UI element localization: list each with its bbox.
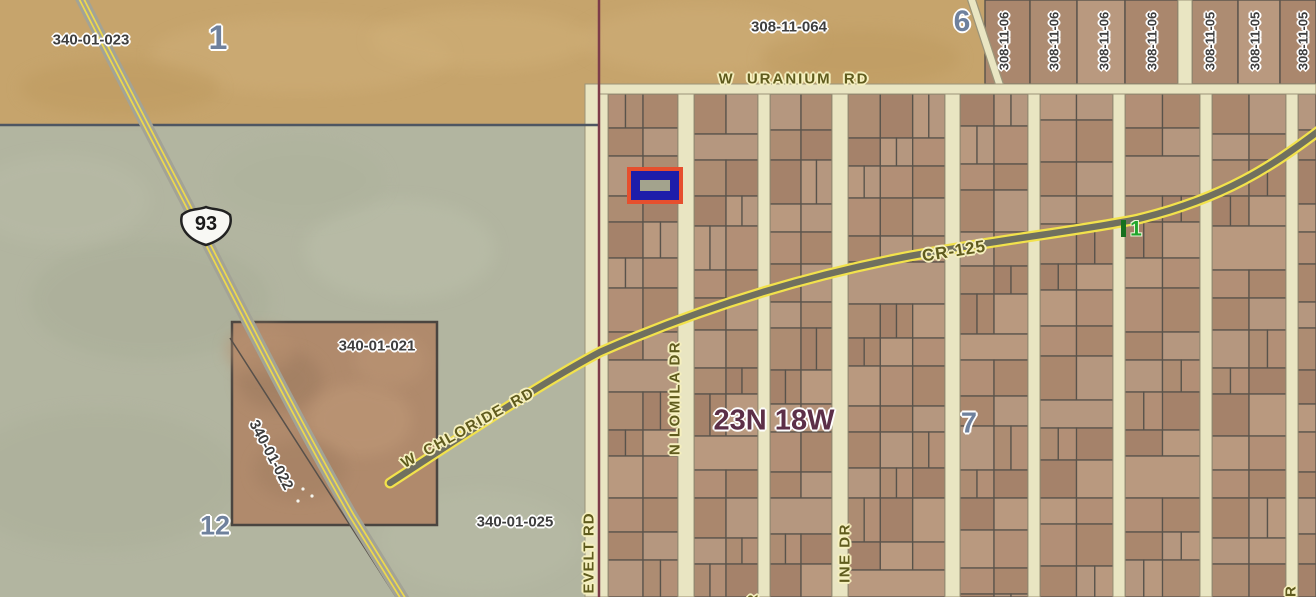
parcel-lot[interactable] <box>1212 436 1249 470</box>
parcel-lot[interactable] <box>726 160 758 196</box>
parcel-lot[interactable] <box>1125 360 1163 392</box>
parcel-lot[interactable] <box>977 294 994 334</box>
parcel-lot[interactable] <box>1249 538 1286 564</box>
parcel-lot[interactable] <box>801 302 832 328</box>
parcel-lot[interactable] <box>1125 498 1163 532</box>
parcel-lot[interactable] <box>960 568 994 594</box>
parcel-lot[interactable] <box>643 128 678 156</box>
parcel-lot[interactable] <box>1125 128 1163 156</box>
parcel-lot[interactable] <box>1077 356 1114 400</box>
parcel-lot[interactable] <box>848 468 880 498</box>
parcel-lot[interactable] <box>817 160 833 204</box>
parcel-lot[interactable] <box>1212 394 1249 436</box>
parcel-lot[interactable] <box>913 304 945 338</box>
parcel-lot[interactable] <box>913 406 945 432</box>
strip-parcel[interactable] <box>1077 0 1125 84</box>
parcel-lot[interactable] <box>801 204 832 232</box>
parcel-lot[interactable] <box>1077 460 1114 498</box>
parcel-lot[interactable] <box>1298 404 1316 432</box>
parcel-lot[interactable] <box>977 126 994 164</box>
parcel-lot[interactable] <box>1163 360 1182 392</box>
parcel-lot[interactable] <box>1212 470 1249 498</box>
parcel-lot[interactable] <box>960 396 994 426</box>
parcel-lot[interactable] <box>710 226 726 270</box>
local-road <box>1286 84 1298 597</box>
parcel-lot[interactable] <box>848 198 880 236</box>
parcel-lot[interactable] <box>994 360 1028 396</box>
parcel-lot[interactable] <box>694 94 726 134</box>
parcel-lot[interactable] <box>726 538 742 564</box>
parcel-lot[interactable] <box>913 498 945 542</box>
parcel-lot[interactable] <box>801 432 832 472</box>
parcel-lot[interactable] <box>643 222 661 258</box>
parcel-lot[interactable] <box>1058 264 1076 290</box>
parcel-lot[interactable] <box>1163 128 1201 156</box>
map-canvas <box>0 0 1316 597</box>
parcel-lot[interactable] <box>1298 472 1316 498</box>
parcel-lot[interactable] <box>913 366 945 406</box>
parcel-lot[interactable] <box>1125 94 1163 128</box>
parcel-lot[interactable] <box>801 94 832 130</box>
parcel-lot[interactable] <box>1163 288 1201 332</box>
parcel-lot[interactable] <box>1212 330 1249 368</box>
parcel-lot[interactable] <box>960 94 994 126</box>
parcel-lot[interactable] <box>1212 134 1249 160</box>
parcel-lot[interactable] <box>643 94 678 128</box>
parcel-lot[interactable] <box>726 226 758 270</box>
parcel-lot[interactable] <box>1249 564 1286 597</box>
parcel-lot[interactable] <box>913 166 945 198</box>
parcel-lot[interactable] <box>1249 498 1268 538</box>
parcel-lot[interactable] <box>643 456 678 498</box>
parcel-lot[interactable] <box>1231 196 1250 226</box>
parcel-lot[interactable] <box>1249 196 1286 226</box>
parcel-lot[interactable] <box>770 564 801 597</box>
parcel-lot[interactable] <box>1212 298 1249 330</box>
parcel-lot[interactable] <box>1040 196 1077 224</box>
parcel-lot[interactable] <box>994 266 1011 294</box>
parcel-lot[interactable] <box>786 534 802 564</box>
parcel-lot[interactable] <box>1040 264 1058 290</box>
parcel-lot[interactable] <box>848 366 880 406</box>
parcel-lot[interactable] <box>994 190 1028 232</box>
parcel-lot[interactable] <box>801 370 832 404</box>
parcel-lot[interactable] <box>994 396 1028 426</box>
parcel-lot[interactable] <box>694 160 726 196</box>
parcel-lot[interactable] <box>608 498 643 532</box>
parcel-lot[interactable] <box>1077 326 1114 356</box>
parcel-lot[interactable] <box>694 226 710 270</box>
parcel-lot[interactable] <box>1231 368 1250 394</box>
parcel-lot[interactable] <box>1249 436 1286 470</box>
parcel-lot[interactable] <box>1011 94 1028 126</box>
parcel-lot[interactable] <box>1249 270 1286 298</box>
parcel-lot[interactable] <box>742 368 758 394</box>
parcel-lot[interactable] <box>1249 298 1286 330</box>
strip-parcel[interactable] <box>1280 0 1316 84</box>
parcel-lot[interactable] <box>694 196 726 226</box>
parcel-lot[interactable] <box>1212 196 1231 226</box>
parcel-lot[interactable] <box>726 394 758 436</box>
parcel-lot[interactable] <box>1144 560 1163 597</box>
parcel-lot[interactable] <box>817 328 833 370</box>
parcel-lot[interactable] <box>960 530 994 568</box>
parcel-lot[interactable] <box>960 190 994 232</box>
parcel-lot[interactable] <box>1212 564 1249 597</box>
parcel-lot[interactable] <box>1125 332 1163 360</box>
parcel-lot[interactable] <box>694 330 726 368</box>
parcel-lot[interactable] <box>1040 400 1113 428</box>
parcel-lot[interactable] <box>1040 356 1077 400</box>
parcel-lot[interactable] <box>880 138 896 166</box>
parcel-lot[interactable] <box>1298 232 1316 264</box>
parcel-lot[interactable] <box>994 164 1028 190</box>
parcel-lot[interactable] <box>1040 460 1077 498</box>
parcel-lot[interactable] <box>770 498 832 534</box>
parcel-lot[interactable] <box>770 160 801 204</box>
parcel-lot[interactable] <box>1212 368 1231 394</box>
parcel-lot[interactable] <box>770 130 801 160</box>
parcel-lot[interactable] <box>1125 258 1163 288</box>
parcel-lot[interactable] <box>880 406 912 432</box>
parcel-lot[interactable] <box>742 196 758 226</box>
parcel-lot[interactable] <box>710 564 726 597</box>
parcel-lot[interactable] <box>643 498 678 532</box>
parcel-lot[interactable] <box>1298 204 1316 232</box>
parcel-lot[interactable] <box>1298 160 1316 204</box>
parcel-lot[interactable] <box>608 560 643 597</box>
parcel-lot[interactable] <box>643 258 678 288</box>
parcel-lot[interactable] <box>726 470 758 498</box>
parcel-lot[interactable] <box>897 304 913 338</box>
parcel-lot[interactable] <box>1077 290 1114 326</box>
parcel-lot[interactable] <box>1125 392 1144 430</box>
parcel-lot[interactable] <box>1125 156 1200 196</box>
parcel-lot[interactable] <box>848 338 864 366</box>
parcel-lot[interactable] <box>770 328 801 370</box>
parcel-lot[interactable] <box>848 432 880 468</box>
parcel-lot[interactable] <box>913 542 945 570</box>
parcel-lot[interactable] <box>1077 94 1114 120</box>
parcel-lot[interactable] <box>864 338 880 366</box>
parcel-lot[interactable] <box>1040 326 1077 356</box>
parcel-lot[interactable] <box>1163 498 1201 532</box>
parcel-lot[interactable] <box>1125 456 1200 498</box>
parcel-lot[interactable] <box>960 294 977 334</box>
parcel-lot[interactable] <box>994 294 1028 334</box>
parcel-lot[interactable] <box>694 498 726 538</box>
highlighted-parcel-center <box>640 180 670 191</box>
local-road <box>1200 84 1212 597</box>
parcel-lot[interactable] <box>608 456 643 498</box>
parcel-lot[interactable] <box>726 498 758 538</box>
parcel-lot[interactable] <box>786 370 802 404</box>
local-road <box>585 84 608 597</box>
parcel-lot[interactable] <box>1040 162 1077 196</box>
parcel-lot[interactable] <box>801 472 832 498</box>
parcel-lot[interactable] <box>960 360 994 396</box>
parcel-lot[interactable] <box>1011 426 1028 470</box>
parcel-lot[interactable] <box>1163 430 1201 456</box>
strip-parcel[interactable] <box>1125 0 1178 84</box>
parcel-lot[interactable] <box>1163 560 1201 597</box>
parcel-lot[interactable] <box>801 404 832 432</box>
parcel-lot[interactable] <box>848 304 880 338</box>
parcel-lot[interactable] <box>1040 94 1077 120</box>
parcel-lot[interactable] <box>643 392 661 430</box>
parcel-lot[interactable] <box>960 498 994 530</box>
parcel-lot[interactable] <box>960 126 977 164</box>
parcel-lot[interactable] <box>1077 524 1114 566</box>
parcel-lot[interactable] <box>801 534 832 564</box>
parcel-lot[interactable] <box>1077 428 1114 460</box>
strip-parcel[interactable] <box>1238 0 1280 84</box>
parcel-lot[interactable] <box>726 94 758 134</box>
parcel-lot[interactable] <box>1298 498 1316 534</box>
parcel-lot[interactable] <box>1298 328 1316 370</box>
parcel-lot[interactable] <box>608 288 643 332</box>
parcel-lot[interactable] <box>1212 270 1249 298</box>
parcel-lot[interactable] <box>1298 370 1316 404</box>
parcel-lot[interactable] <box>1163 258 1201 288</box>
parcel-lot[interactable] <box>801 328 817 370</box>
parcel-lot[interactable] <box>960 266 994 294</box>
parcel-lot[interactable] <box>960 426 994 470</box>
parcel-lot[interactable] <box>1212 538 1249 564</box>
parcel-lot[interactable] <box>1144 392 1163 430</box>
parcel-lot[interactable] <box>994 568 1028 594</box>
parcel-lot[interactable] <box>913 94 929 138</box>
parcel-lot[interactable] <box>848 94 880 138</box>
parcel-lot[interactable] <box>608 94 626 128</box>
parcel-lot[interactable] <box>880 166 912 198</box>
parcel-lot[interactable] <box>1249 470 1286 498</box>
parcel-lot[interactable] <box>694 538 726 564</box>
parcel-lot[interactable] <box>1125 222 1144 258</box>
local-road <box>1028 84 1040 597</box>
parcel-lot[interactable] <box>1040 566 1077 597</box>
parcel-lot[interactable] <box>1249 94 1286 134</box>
parcel-lot[interactable] <box>643 430 678 456</box>
parcel-lot[interactable] <box>880 468 896 498</box>
parcel-lot[interactable] <box>1212 498 1249 538</box>
parcel-lot[interactable] <box>1298 534 1316 564</box>
parcel-lot[interactable] <box>880 338 912 366</box>
parcel-lot[interactable] <box>1298 432 1316 472</box>
parcel-lot[interactable] <box>880 304 896 338</box>
parcel-lot[interactable] <box>848 498 864 542</box>
local-road <box>758 84 770 597</box>
parcel-lot[interactable] <box>726 196 742 226</box>
parcel-lot[interactable] <box>608 128 643 156</box>
strip-parcels <box>971 0 1316 86</box>
parcel-lot[interactable] <box>608 222 643 258</box>
parcel-lot[interactable] <box>929 94 945 138</box>
parcel-lot[interactable] <box>897 138 913 166</box>
parcel-lot[interactable] <box>1212 226 1286 270</box>
parcel-lot[interactable] <box>770 404 801 432</box>
parcel-lot[interactable] <box>1077 566 1095 597</box>
local-road <box>1113 84 1125 597</box>
parcel-lot[interactable] <box>1125 430 1163 456</box>
parcel-lot[interactable] <box>913 468 945 498</box>
parcel-lot[interactable] <box>880 498 912 542</box>
parcel-lot[interactable] <box>770 534 786 564</box>
parcel-lot[interactable] <box>1040 120 1077 162</box>
parcel-lot[interactable] <box>960 470 977 498</box>
parcel-lot[interactable] <box>848 542 880 570</box>
parcel-lot[interactable] <box>801 160 817 204</box>
parcel-lot[interactable] <box>710 394 726 436</box>
parcel-lot[interactable] <box>694 470 726 498</box>
parcel-lot[interactable] <box>994 94 1011 126</box>
parcel-lot[interactable] <box>848 138 880 166</box>
local-road-w-uranium <box>599 84 1316 94</box>
gis-parcel-map[interactable]: 340-01-023 1 308-11-064 6 W URANIUM RD 3… <box>0 0 1316 597</box>
parcel-lot[interactable] <box>643 532 678 560</box>
parcel-lot[interactable] <box>880 432 912 468</box>
parcel-lot[interactable] <box>1077 264 1114 290</box>
parcel-lot[interactable] <box>913 138 945 166</box>
parcel-lot[interactable] <box>742 538 758 564</box>
parcel-lot[interactable] <box>626 258 644 288</box>
parcel-lot[interactable] <box>880 94 912 138</box>
parcel-lot[interactable] <box>994 470 1028 498</box>
parcel-lot[interactable] <box>880 198 912 236</box>
parcel-lot[interactable] <box>801 130 832 160</box>
parcel-lot[interactable] <box>1298 94 1316 130</box>
parcel-lot[interactable] <box>1249 394 1286 436</box>
parcel-lot[interactable] <box>608 532 643 560</box>
parcel-lot[interactable] <box>626 430 644 456</box>
parcel-lot[interactable] <box>1163 392 1201 430</box>
parcel-lot[interactable] <box>1125 288 1163 332</box>
parcel-lot[interactable] <box>913 338 945 366</box>
parcel-lot[interactable] <box>801 232 832 264</box>
parcel-lot[interactable] <box>897 468 913 498</box>
local-road <box>678 84 694 597</box>
parcel-lot[interactable] <box>977 470 994 498</box>
parcel-lot[interactable] <box>1011 266 1028 294</box>
parcel-lot[interactable] <box>694 564 710 597</box>
parcel-lot[interactable] <box>1077 498 1114 524</box>
local-road <box>832 84 848 597</box>
parcel-lot[interactable] <box>929 432 945 468</box>
parcel-lot[interactable] <box>694 134 758 160</box>
parcel-lot[interactable] <box>1058 428 1076 460</box>
parcel-lot[interactable] <box>1298 302 1316 328</box>
strip-parcel[interactable] <box>1030 0 1077 84</box>
parcel-lot[interactable] <box>880 366 912 406</box>
parcel-lot[interactable] <box>626 94 644 128</box>
parcel-lot[interactable] <box>770 370 786 404</box>
parcel-lot[interactable] <box>1125 560 1144 597</box>
parcel-lot[interactable] <box>864 166 880 198</box>
parcel-lot[interactable] <box>960 334 1028 360</box>
parcel-lot[interactable] <box>608 430 626 456</box>
parcel-lot[interactable] <box>608 258 626 288</box>
parcel-lot[interactable] <box>661 392 679 430</box>
parcel-lot[interactable] <box>770 432 801 472</box>
parcel-lot[interactable] <box>608 360 678 392</box>
parcel-lot[interactable] <box>1163 532 1182 560</box>
parcel-lot[interactable] <box>1163 94 1201 128</box>
parcel-lot[interactable] <box>1125 532 1163 560</box>
parcel-lot[interactable] <box>1077 162 1114 196</box>
parcel-lot[interactable] <box>694 394 710 436</box>
parcel-lot[interactable] <box>880 542 912 570</box>
parcel-lot[interactable] <box>770 232 801 264</box>
parcel-lot[interactable] <box>1298 564 1316 597</box>
parcel-lot[interactable] <box>1268 330 1287 368</box>
parcel-lot[interactable] <box>848 570 945 597</box>
parcel-lot[interactable] <box>994 530 1028 568</box>
parcel-lot[interactable] <box>770 302 801 328</box>
parcel-lot[interactable] <box>608 392 643 430</box>
parcel-lot[interactable] <box>960 164 994 190</box>
parcel-lot[interactable] <box>694 368 726 394</box>
parcel-lot[interactable] <box>1040 498 1077 524</box>
road-segment <box>1178 0 1192 84</box>
parcel-lot[interactable] <box>726 368 742 394</box>
strip-parcel[interactable] <box>1192 0 1238 84</box>
parcel-lot[interactable] <box>1181 532 1200 560</box>
parcel-lot[interactable] <box>1040 290 1077 326</box>
parcel-lot[interactable] <box>1077 120 1114 162</box>
parcel-lot[interactable] <box>994 126 1028 164</box>
milepost-flag-icon <box>1121 220 1126 237</box>
parcel-lot[interactable] <box>1212 94 1249 134</box>
parcel-lot[interactable] <box>726 330 758 368</box>
parcel-lot[interactable] <box>1249 368 1286 394</box>
parcel-lot[interactable] <box>1163 222 1201 258</box>
parcel-lot[interactable] <box>994 498 1028 530</box>
parcel-lot[interactable] <box>1040 428 1058 460</box>
parcel-lot[interactable] <box>864 498 880 542</box>
parcel-lot[interactable] <box>643 560 661 597</box>
parcel-lot[interactable] <box>770 94 801 130</box>
parcel-lot[interactable] <box>848 406 880 432</box>
parcel-lot[interactable] <box>801 564 832 597</box>
parcel-lot[interactable] <box>848 166 864 198</box>
parcel-lot[interactable] <box>1040 524 1077 566</box>
parcel-lot[interactable] <box>661 560 679 597</box>
parcel-lot[interactable] <box>1144 222 1163 258</box>
parcel-lot[interactable] <box>1298 264 1316 302</box>
parcel-lot[interactable] <box>726 564 758 597</box>
local-road <box>945 84 960 597</box>
parcel-lot[interactable] <box>770 204 801 232</box>
parcel-lot[interactable] <box>1163 332 1201 360</box>
parcel-lot[interactable] <box>913 432 929 468</box>
parcel-lot[interactable] <box>770 472 801 498</box>
parcel-lot[interactable] <box>1249 330 1268 368</box>
parcel-lot[interactable] <box>1181 360 1200 392</box>
parcel-lot[interactable] <box>913 198 945 236</box>
parcel-lot[interactable] <box>694 270 726 298</box>
parcel-lot[interactable] <box>1268 498 1287 538</box>
parcel-lot[interactable] <box>661 222 679 258</box>
parcel-lot[interactable] <box>1095 566 1113 597</box>
parcel-lot[interactable] <box>694 436 758 470</box>
parcel-lot[interactable] <box>994 426 1011 470</box>
